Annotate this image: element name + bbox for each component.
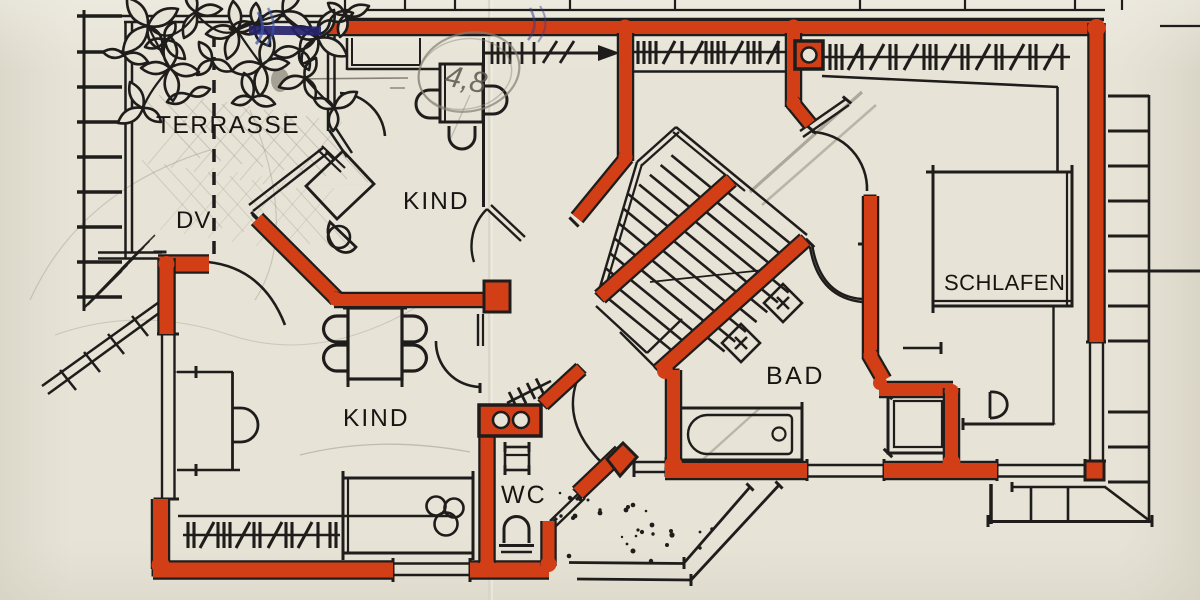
svg-text:KIND: KIND (343, 405, 410, 432)
svg-text:SCHLAFEN: SCHLAFEN (944, 270, 1065, 295)
svg-text:WC: WC (501, 481, 547, 509)
svg-text:KIND: KIND (403, 188, 470, 215)
svg-text:TERRASSE: TERRASSE (156, 112, 300, 139)
svg-text:BAD: BAD (766, 362, 825, 390)
svg-text:DV: DV (176, 207, 211, 234)
